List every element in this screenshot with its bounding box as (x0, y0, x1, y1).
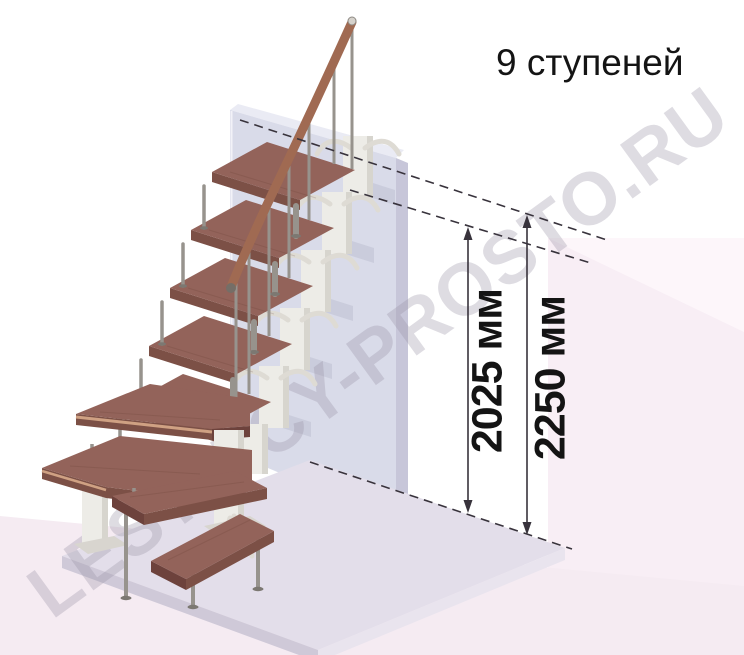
stair-diagram: LESTNICY-PROSTO.RU (0, 0, 744, 655)
stair-height-label: 2025 мм (464, 289, 513, 453)
total-height-label: 2250 мм (527, 296, 576, 460)
steps-count-label: 9 ступеней (496, 42, 684, 84)
dimension-annotations (0, 0, 744, 655)
